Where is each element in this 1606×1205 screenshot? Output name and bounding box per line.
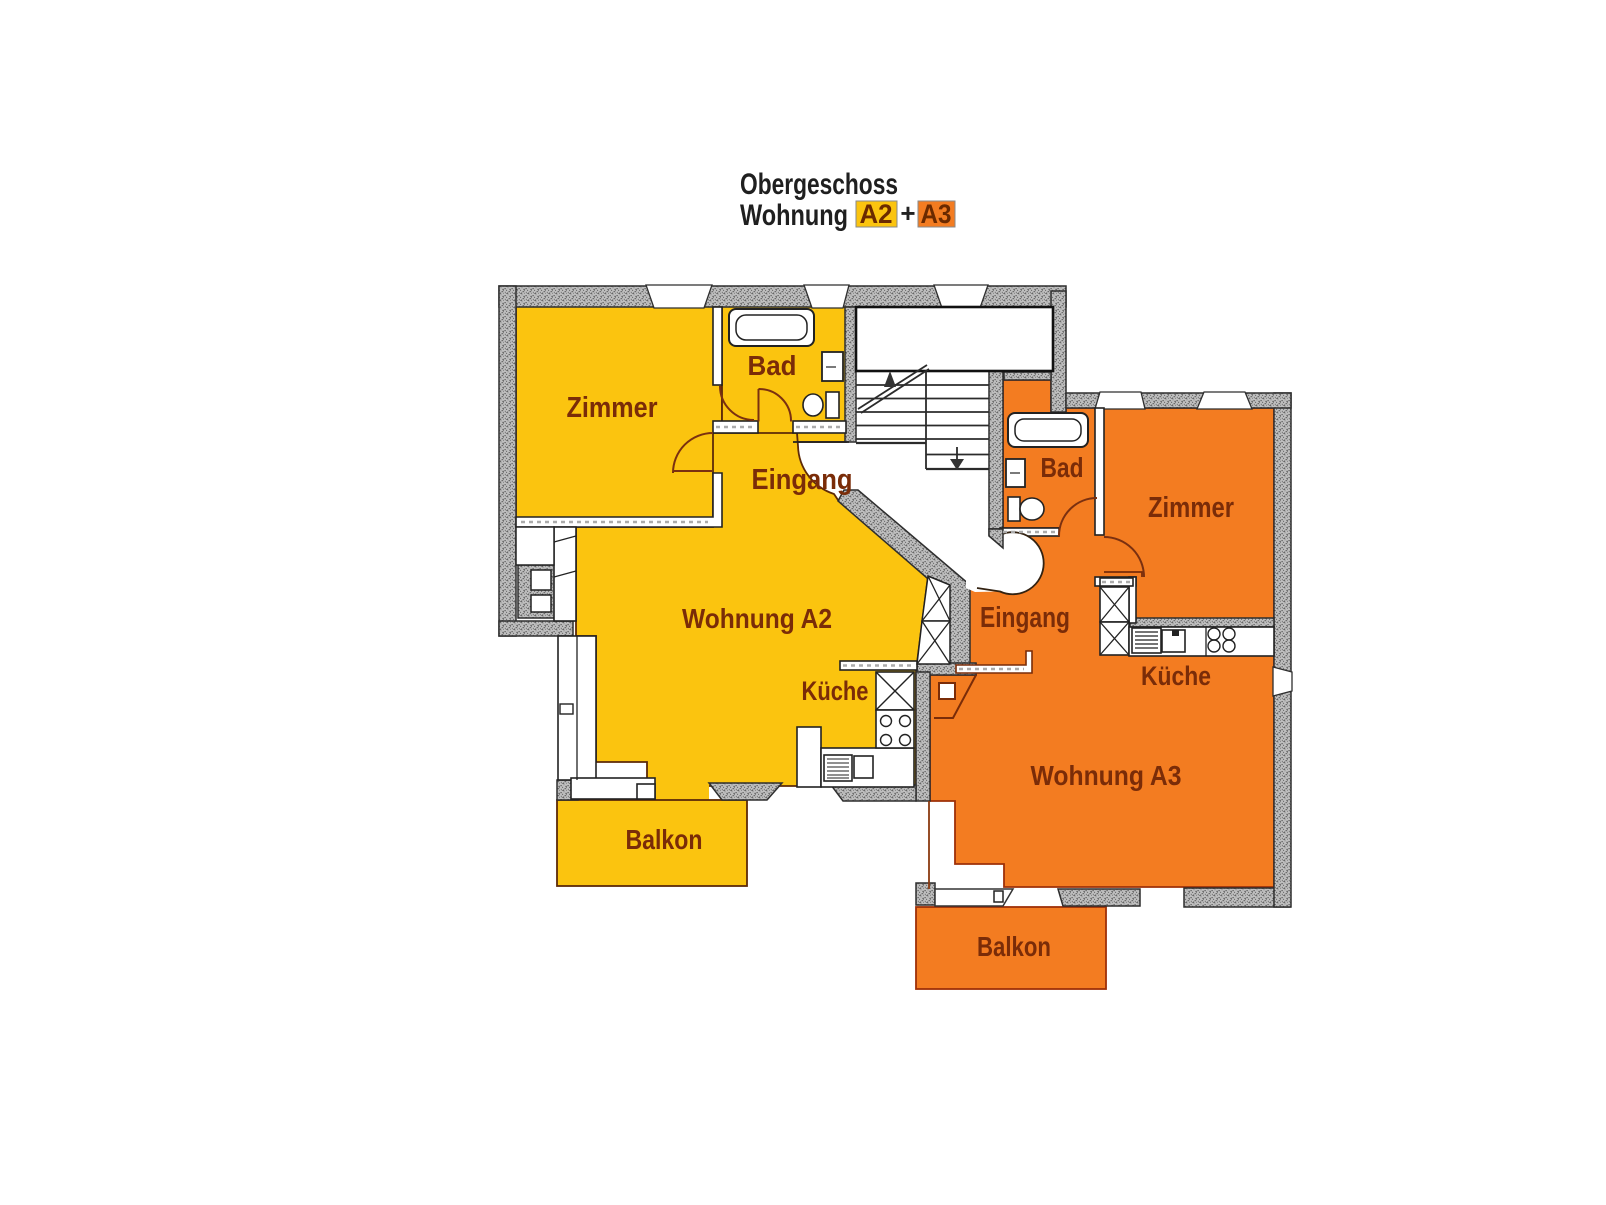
svg-text:Eingang: Eingang bbox=[980, 602, 1070, 634]
svg-text:+: + bbox=[900, 198, 915, 228]
svg-text:A3: A3 bbox=[921, 199, 952, 229]
svg-text:Zimmer: Zimmer bbox=[1148, 492, 1234, 524]
svg-text:Balkon: Balkon bbox=[977, 931, 1051, 962]
svg-text:Bad: Bad bbox=[748, 350, 797, 381]
svg-text:Bad: Bad bbox=[1041, 452, 1084, 483]
svg-text:Wohnung A2: Wohnung A2 bbox=[682, 603, 832, 634]
svg-text:Eingang: Eingang bbox=[752, 464, 853, 496]
svg-text:Zimmer: Zimmer bbox=[567, 392, 658, 424]
svg-text:Küche: Küche bbox=[1141, 661, 1211, 691]
svg-text:A2: A2 bbox=[860, 199, 893, 229]
svg-text:Obergeschoss: Obergeschoss bbox=[740, 168, 898, 201]
svg-text:Balkon: Balkon bbox=[626, 824, 703, 855]
svg-text:Küche: Küche bbox=[802, 676, 869, 706]
svg-text:Wohnung A3: Wohnung A3 bbox=[1031, 760, 1182, 791]
svg-text:Wohnung: Wohnung bbox=[740, 199, 848, 232]
